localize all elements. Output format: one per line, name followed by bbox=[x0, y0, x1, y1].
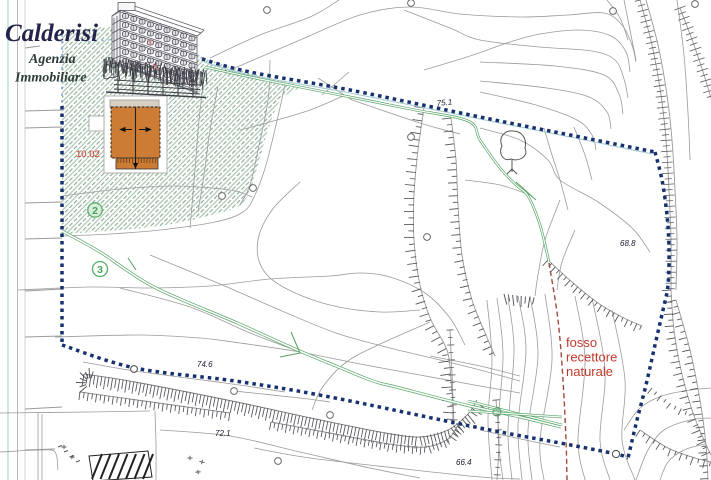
svg-text:10.02: 10.02 bbox=[76, 149, 100, 160]
svg-text:2: 2 bbox=[92, 205, 98, 217]
svg-text:Immobiliare: Immobiliare bbox=[14, 71, 87, 86]
svg-text:Calderisi: Calderisi bbox=[5, 20, 98, 47]
svg-text:66.4: 66.4 bbox=[456, 458, 472, 467]
svg-text:recettore: recettore bbox=[566, 350, 617, 365]
svg-text:74.6: 74.6 bbox=[197, 360, 213, 369]
svg-text:72.1: 72.1 bbox=[215, 429, 231, 438]
svg-text:Agenzia: Agenzia bbox=[28, 52, 76, 67]
svg-text:fosso: fosso bbox=[566, 335, 597, 350]
svg-text:3: 3 bbox=[97, 264, 103, 276]
svg-text:75.1: 75.1 bbox=[436, 97, 452, 108]
svg-text:naturale: naturale bbox=[566, 364, 613, 379]
svg-text:68.8: 68.8 bbox=[620, 239, 636, 248]
